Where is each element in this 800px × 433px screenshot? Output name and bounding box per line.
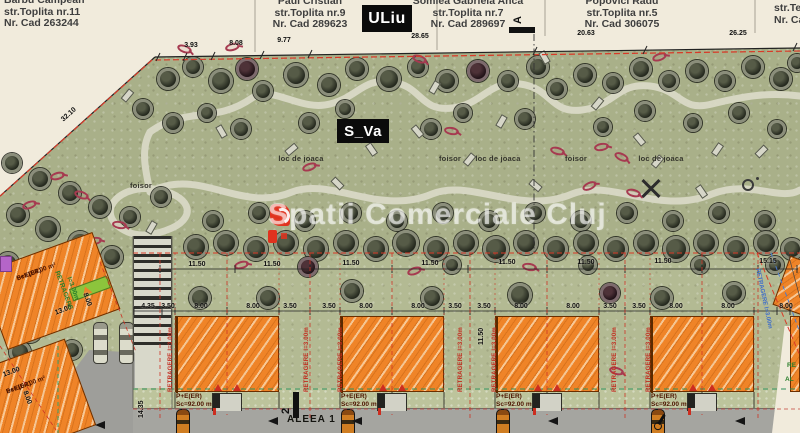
uliu-label-box: ULiu [362,5,412,32]
tree-icon [443,256,461,274]
tree-icon [659,71,679,91]
tree-icon [594,118,612,136]
x-marker-icon [639,177,663,201]
duplex-house: P+E(ER)Sc=92.00 m²P+E(ER)Sc=92.00 m² [650,316,754,392]
tree-icon [163,113,183,133]
tree-icon [467,60,489,82]
dimension-label: 28.65 [411,33,429,40]
driveway-gate [532,393,562,411]
tree-icon [133,99,153,119]
red-arrow-icon [398,384,406,391]
dimension-label: 11.50 [263,261,280,268]
neighbor-parcel-label: str.TeNr. Ca [774,3,800,26]
tree-icon [29,168,51,190]
car-icon [93,322,108,364]
dimension-label: 3.93 [184,42,198,49]
tree-icon [635,101,655,121]
gate-post [213,394,220,401]
tree-icon [157,68,179,90]
road-aleea-1 [133,408,800,433]
park-feature-label: foisor [130,181,152,190]
tree-icon [547,79,567,99]
duplex-house: P+E(ER)Sc=92.00 m²P+E(ER)Sc=92.00 m² [175,316,279,392]
tree-icon [364,237,388,261]
retragere-label: RETRAGERE l=3.00m [304,327,310,392]
tree-icon [742,56,764,78]
dimension-label: 3.50 [283,303,297,310]
party-wall [176,317,178,393]
gate-post [378,401,385,408]
tree-icon [209,69,233,93]
dimension-label: 3.50 [632,303,646,310]
retragere-label: AL [785,376,794,383]
tree-icon [244,237,268,261]
retragere-label: RETRAGERE l=3.00m [168,327,174,392]
tree-icon [603,73,623,93]
gate-post [688,401,695,408]
tree-icon [214,231,238,255]
gate-marker [378,408,381,415]
dimension-label: 11.50 [498,259,515,266]
dimension-label: 8.00 [779,303,793,310]
retragere-label: RETRAGERE l=3.00m [612,327,618,392]
tree-icon [715,71,735,91]
tree-icon [755,211,775,231]
dimension-label: 11.50 [421,260,438,267]
tree-icon [393,230,419,256]
driveway-gate [377,393,407,411]
tree-icon [454,104,472,122]
tree-icon [600,283,620,303]
retragere-label: RETRAGERE l=3.00m [492,327,498,392]
park-feature-label: foisor [439,154,461,163]
red-arrow-icon [233,384,241,391]
park-feature-label: loc de joaca [638,154,683,163]
section-a-bar [509,27,535,33]
tree-icon [421,119,441,139]
gate-marker [213,408,216,415]
dimension-label: 32.10 [60,106,78,123]
tree-icon [183,57,203,77]
dimension-label: 3.50 [477,303,491,310]
dimension-label: 8.00 [566,303,580,310]
tree-icon [691,256,709,274]
dimension-label: 3.50 [322,303,336,310]
red-arrow-icon [534,384,542,391]
dimension-label: 8.00 [411,303,425,310]
tree-icon [770,68,792,90]
tree-icon [723,282,745,304]
retragere-label: RETRAGERE l=3.00m [458,327,464,392]
neighbor-parcel-label: Popovici Radustr.Toplita nr.5Nr. Cad 306… [552,0,692,31]
retragere-label: RETRAGERE l=3.00m [338,327,344,392]
tree-icon [184,235,208,259]
tree-icon [498,71,518,91]
tree-icon [754,231,778,255]
neighbor-parcel-label: Paul Cristianstr.Toplita nr.9Nr. Cad 289… [250,0,370,31]
section-2-label: 2 [280,408,292,414]
red-arrow-icon [379,384,387,391]
tree-icon [686,60,708,82]
dimension-label: 11.50 [342,260,359,267]
dimension-label: 8.00 [359,303,373,310]
tree-icon [253,81,273,101]
tree-icon [436,70,458,92]
tree-icon [684,114,702,132]
park-feature-label: loc de joaca [475,154,520,163]
watermark-text: Spatii Comerciale Cluj [268,198,607,232]
tree-icon [604,237,628,261]
dimension-label: 3.50 [448,303,462,310]
tree-icon [544,237,568,261]
tree-icon [574,231,598,255]
tree-icon [663,211,683,231]
tree-icon [2,153,22,173]
tree-icon [694,231,718,255]
dimension-label: 9.77 [277,37,291,44]
gate-post [378,394,385,401]
dimension-label: 3.50 [161,303,175,310]
car-icon [119,322,134,364]
tree-icon [515,109,535,129]
dimension-label: 26.25 [729,30,747,37]
dimension-label: 4.35 [141,303,155,310]
building-area-label: Sc=104.00 m² [16,262,57,283]
tree-icon [514,231,538,255]
tree-icon [89,196,111,218]
tree-icon [203,211,223,231]
road-arrow-icon [95,421,105,429]
tree-icon [617,203,637,223]
red-arrow-icon [553,384,561,391]
s-va-label-box: S_Va [337,119,389,143]
zebra-hatch [134,260,171,297]
tree-icon [346,58,368,80]
neighbor-parcel-label: Barbu Campeanstr.Toplita nr.11Nr. Cad 26… [4,0,85,30]
dimension-label: 11.50 [654,258,671,265]
tree-icon [36,217,60,241]
road-arrow-icon [268,417,278,425]
dimension-label: 14.35 [138,400,145,418]
gate-post [688,394,695,401]
tree-icon [768,120,786,138]
tree-icon [284,63,308,87]
retragere-label: RE [787,362,796,369]
tree-icon [454,231,478,255]
tree-icon [788,54,800,72]
dimension-label: 3.50 [603,303,617,310]
gate-post [213,401,220,408]
gate-post [533,401,540,408]
dimension-label: 8.00 [721,303,735,310]
dimension-label: 8.00 [669,303,683,310]
tree-icon [257,287,279,309]
tree-icon [249,203,269,223]
car-icon [176,409,190,433]
tree-icon [299,113,319,133]
dimension-label: 20.63 [577,30,595,37]
tree-icon [424,237,448,261]
tree-icon [334,231,358,255]
tree-icon [231,119,251,139]
gate-post [533,394,540,401]
road-arrow-icon [548,417,558,425]
gate-marker [533,408,536,415]
driveway-gate [687,393,717,411]
dimension-label: 15.15 [759,258,777,265]
dimension-label: 11.50 [577,259,594,266]
dimension-label: 8.00 [194,303,208,310]
tree-icon [198,104,216,122]
tree-icon [298,257,318,277]
tree-icon [377,67,401,91]
tree-icon [709,203,729,223]
duplex-house: P+E(ER)Sc=92.00 m²P+E(ER)Sc=92.00 m² [340,316,444,392]
stairs-strip [133,236,172,408]
tree-icon [724,237,748,261]
tree-icon [341,280,363,302]
duplex-house: P+E(ER)Sc=92.00 m²P+E(ER)Sc=92.00 m² [495,316,599,392]
car-icon [496,409,510,433]
tree-icon [729,103,749,123]
retragere-label: RETRAGERE l=3.00m [646,327,652,392]
red-arrow-icon [689,384,697,391]
zone-fragment-magenta [0,256,12,272]
section-2-bar [293,392,299,418]
tree-icon [634,231,658,255]
tree-icon [336,100,354,118]
gate-marker [688,408,691,415]
red-arrow-icon [708,384,716,391]
site-plan-canvas: Spatii Comerciale Cluj Barbu Campeanstr.… [0,0,800,433]
driveway-gate [212,393,242,411]
dimension-label: 11.50 [478,328,485,345]
tree-icon [318,74,340,96]
circle-marker-icon [742,179,754,191]
tree-icon [151,187,171,207]
park-feature-label: foisor [565,154,587,163]
tree-icon [574,64,596,86]
tree-icon [630,58,652,80]
road-arrow-icon [735,417,745,425]
dimension-label: 11.50 [188,261,205,268]
tree-icon [236,58,258,80]
dimension-label: 8.00 [246,303,260,310]
zebra-hatch [134,236,171,260]
road-arrow-icon [352,417,362,425]
park-feature-label: loc de joaca [278,154,323,163]
red-arrow-icon [214,384,222,391]
dimension-label: 8.00 [514,303,528,310]
dimension-label: 8.08 [229,40,243,47]
section-a-label: A [512,16,524,24]
